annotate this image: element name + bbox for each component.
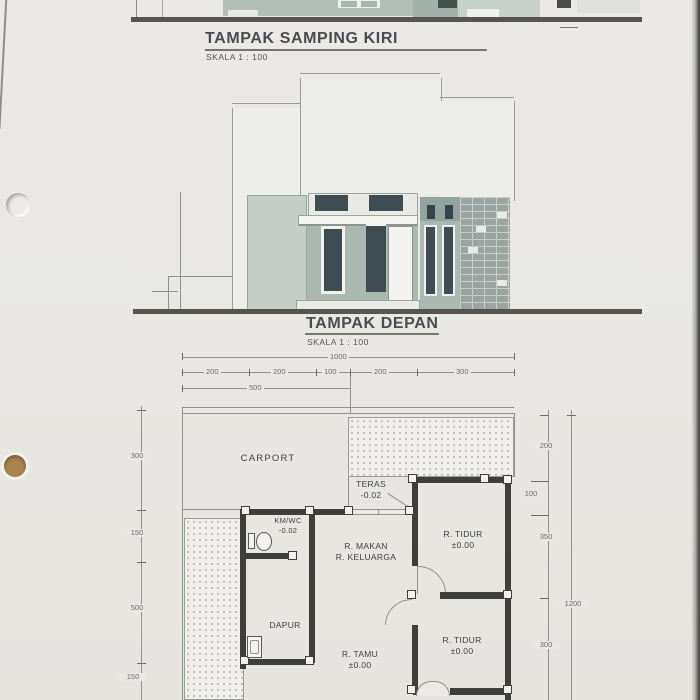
dim-total-width: 1000 [328, 353, 349, 361]
side-elev-dark-block [557, 0, 571, 8]
dim-sub-width: 500 [247, 384, 264, 392]
column [407, 590, 416, 599]
punch-hole-embossed [6, 193, 30, 217]
room-level: -0.02 [346, 490, 396, 501]
right-gable [420, 197, 460, 221]
room-name: R. TIDUR [427, 635, 497, 646]
room-label-tidur-1: R. TIDUR ±0.00 [428, 529, 498, 551]
stray-line [560, 27, 578, 28]
plot-right-boundary [514, 413, 515, 477]
hatch-area-left [184, 518, 244, 700]
front-view-title: TAMPAK DEPAN [306, 315, 439, 333]
facade-window-1 [321, 226, 345, 294]
parapet-center [300, 78, 442, 195]
dim-tick [182, 385, 183, 392]
front-left-fence-step [152, 291, 178, 292]
side-elev-post [136, 0, 137, 17]
room-name: CARPORT [228, 453, 308, 465]
carport-wall [247, 195, 307, 310]
white-brick [497, 212, 507, 218]
parapet-right [440, 101, 515, 201]
column [288, 551, 297, 560]
dim-left: 150 [123, 529, 151, 537]
sink-basin [250, 640, 259, 654]
gable-vent [427, 205, 435, 219]
side-elev-post-2 [162, 0, 163, 17]
wall [413, 477, 505, 483]
wall [412, 625, 418, 688]
column [241, 506, 250, 515]
column [407, 685, 416, 694]
column [503, 475, 512, 484]
dim-right: 300 [532, 641, 560, 649]
dim-segment: 200 [204, 368, 221, 376]
room-label-makan-keluarga: R. MAKAN R. KELUARGA [320, 541, 412, 563]
room-name: R. TIDUR [428, 529, 498, 540]
dim-tick [182, 369, 183, 376]
side-elev-ground-line [131, 17, 642, 22]
dim-left: 150 [119, 673, 147, 681]
dim-segment: 200 [372, 368, 389, 376]
side-elev-sill [228, 10, 258, 17]
dim-left: 300 [123, 452, 151, 460]
carport-bottom-line [182, 509, 246, 510]
dim-tick [137, 562, 146, 563]
room-level: -0.02 [260, 526, 316, 536]
room-label-teras: TERAS -0.02 [346, 479, 396, 501]
column [503, 590, 512, 599]
room-name: DAPUR [257, 620, 313, 631]
side-elev-vent [438, 0, 457, 8]
plot-top-line-2 [182, 413, 514, 414]
side-view-title: TAMPAK SAMPING KIRI [205, 30, 398, 48]
front-left-fence-top [168, 276, 232, 277]
column [408, 474, 417, 483]
front-view-scale: SKALA 1 : 100 [307, 337, 369, 347]
photo-edge-shadow [691, 0, 700, 700]
gable-vent [445, 205, 453, 219]
column [480, 474, 489, 483]
dim-right: 350 [532, 533, 560, 541]
dim-right: 100 [518, 490, 544, 498]
wall [309, 515, 315, 663]
window-pane [341, 1, 357, 7]
door-arc [418, 566, 446, 594]
room-label-dapur: DAPUR [257, 620, 313, 631]
front-door [388, 226, 413, 302]
dim-tick [182, 353, 183, 360]
front-left-boundary [180, 192, 181, 310]
facade-window-2 [366, 224, 386, 292]
plot-left-boundary [182, 407, 183, 700]
column [305, 506, 314, 515]
dim-tick [531, 481, 549, 482]
punch-hole-through [4, 455, 26, 477]
dim-tick [567, 415, 576, 416]
wall [246, 659, 313, 665]
dim-line-right-outer [571, 410, 572, 700]
room-name: R. MAKAN [320, 541, 412, 552]
dim-tick [249, 369, 250, 376]
dim-segment: 300 [454, 368, 471, 376]
room-label-carport: CARPORT [228, 453, 308, 465]
front-view-title-underline [305, 333, 439, 335]
dim-tick [137, 510, 146, 511]
window-pane [361, 1, 377, 7]
door-arc-bottom [416, 681, 450, 696]
white-brick [468, 247, 478, 253]
room-label-tidur-2: R. TIDUR ±0.00 [427, 635, 497, 657]
dim-tick [316, 369, 317, 376]
dim-tick [137, 663, 146, 664]
room-name: R. TAMU [330, 649, 390, 660]
dim-tick [514, 353, 515, 360]
room-level: ±0.00 [427, 646, 497, 657]
front-elev-ground-line [133, 309, 642, 314]
dim-tick [137, 410, 146, 411]
dim-left: 500 [123, 604, 151, 612]
column [344, 506, 353, 515]
wall [246, 509, 351, 515]
toilet-tank [248, 533, 255, 549]
column [405, 506, 414, 515]
front-left-fence-edge [168, 277, 169, 310]
right-wall-window [442, 225, 455, 296]
dim-tick [417, 369, 418, 376]
sink-icon [247, 636, 262, 658]
room-label-kmwc: KM/WC -0.02 [260, 516, 316, 536]
column [305, 656, 314, 665]
plot-top-line [182, 407, 514, 408]
wall [450, 688, 505, 695]
dim-segment: 200 [271, 368, 288, 376]
wall [440, 592, 505, 599]
dim-right: 200 [532, 442, 560, 450]
canopy [298, 215, 418, 226]
hatch-area-top [348, 417, 514, 477]
dim-tick [540, 598, 549, 599]
right-wall-window [424, 225, 437, 296]
door-arc [385, 599, 412, 625]
clerestory-window [315, 195, 348, 211]
dim-tick [350, 369, 351, 376]
wall [240, 509, 246, 669]
side-view-scale: SKALA 1 : 100 [206, 52, 268, 62]
room-level: ±0.00 [428, 540, 498, 551]
room-level: ±0.00 [330, 660, 390, 671]
opening-tick [378, 509, 379, 515]
white-brick [476, 226, 486, 232]
paper-crease [0, 0, 8, 129]
room-name: R. KELUARGA [320, 552, 412, 563]
dim-line-sub [182, 388, 350, 389]
dim-total-height: 1200 [556, 600, 590, 608]
dim-tick [540, 415, 549, 416]
column [503, 685, 512, 694]
dim-tick [514, 369, 515, 376]
blueprint-photo: TAMPAK SAMPING KIRI SKALA 1 : 100 TAMPAK… [0, 0, 700, 700]
clerestory-window [369, 195, 403, 211]
side-elev-light-block [577, 0, 640, 13]
wall [412, 483, 418, 566]
dim-tick [531, 515, 549, 516]
room-name: TERAS [346, 479, 396, 490]
sliding-opening [351, 509, 408, 515]
room-name: KM/WC [260, 516, 316, 526]
side-view-title-underline [205, 49, 487, 51]
side-elev-sill-2 [467, 9, 499, 17]
room-label-tamu: R. TAMU ±0.00 [330, 649, 390, 671]
dim-segment: 100 [322, 368, 339, 376]
dim-line-right-inner [548, 410, 549, 700]
white-brick [497, 280, 507, 286]
